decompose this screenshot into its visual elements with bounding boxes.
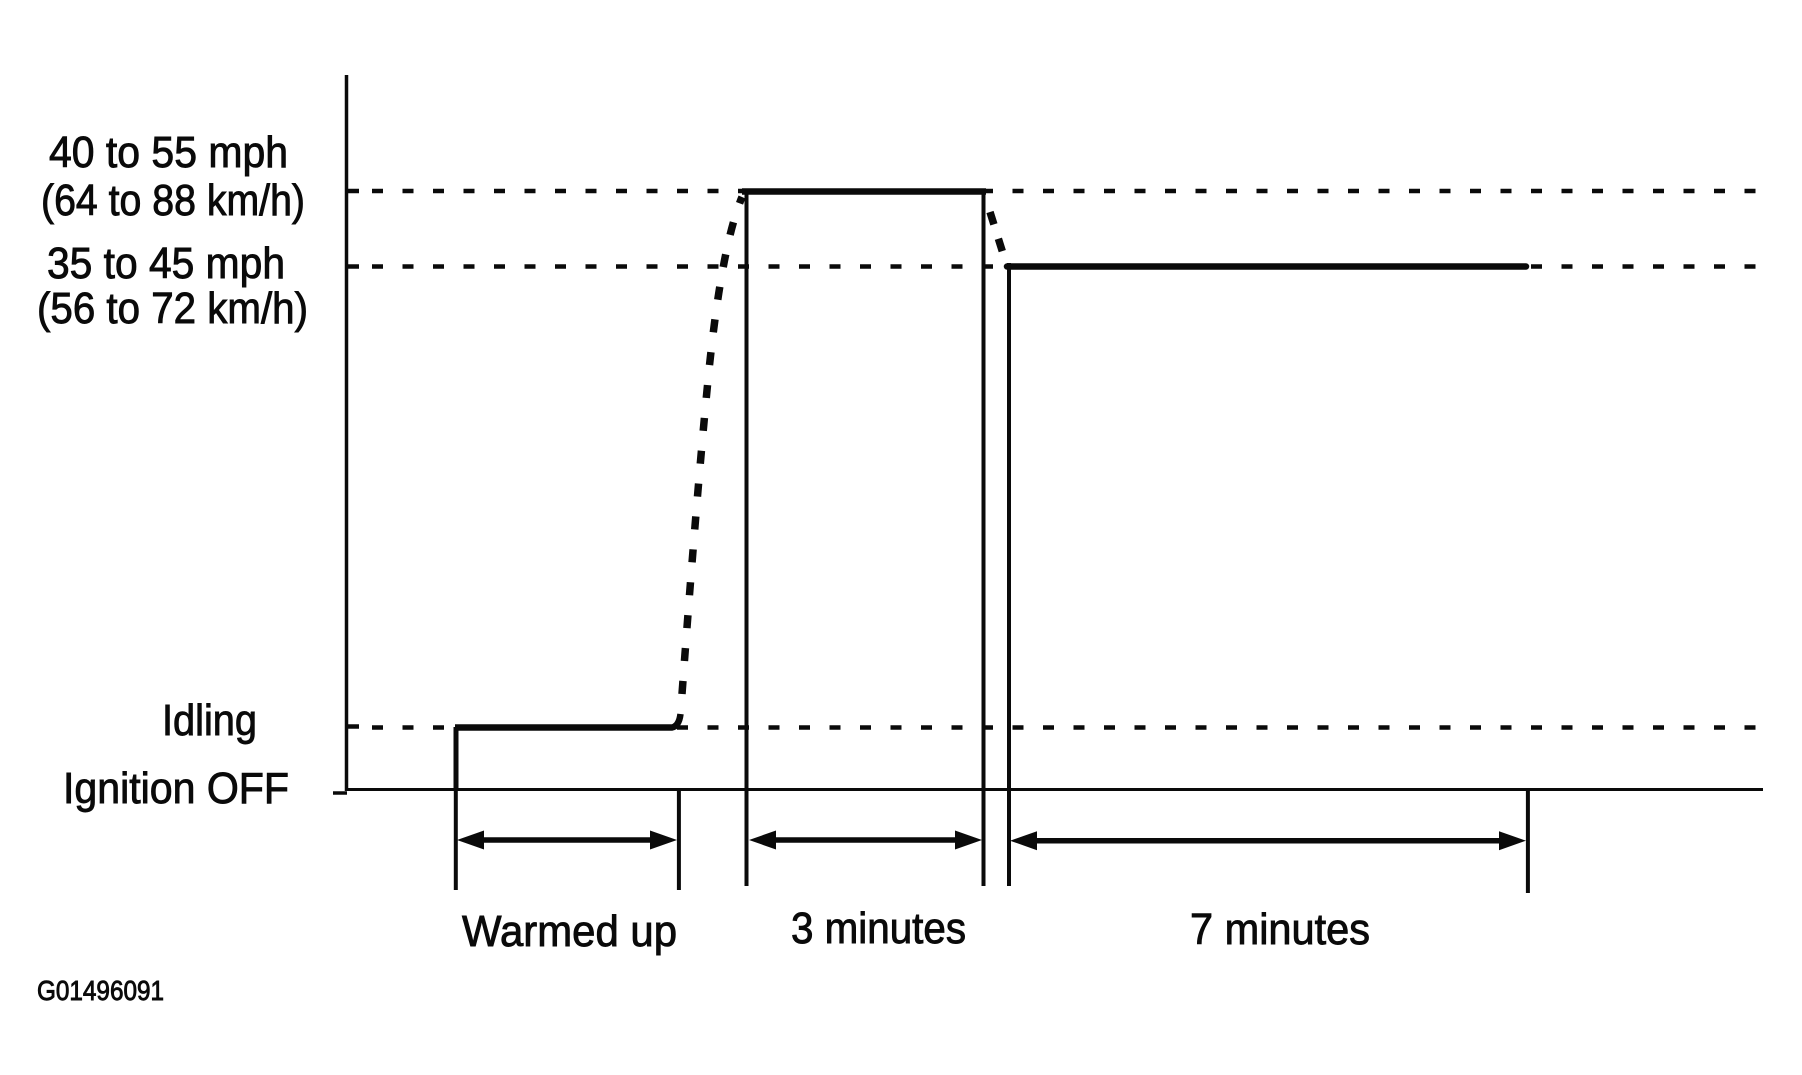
svg-text:Ignition OFF: Ignition OFF <box>63 764 289 813</box>
svg-text:35 to 45 mph: 35 to 45 mph <box>47 239 285 288</box>
svg-text:7 minutes: 7 minutes <box>1190 905 1370 954</box>
svg-text:Idling: Idling <box>162 696 257 745</box>
svg-text:(64 to 88 km/h): (64 to 88 km/h) <box>41 176 305 225</box>
svg-text:G01496091: G01496091 <box>37 975 164 1006</box>
svg-text:Warmed up: Warmed up <box>462 907 677 956</box>
svg-text:40 to 55 mph: 40 to 55 mph <box>49 128 288 177</box>
svg-text:(56 to 72 km/h): (56 to 72 km/h) <box>37 284 308 333</box>
svg-text:3 minutes: 3 minutes <box>791 904 966 953</box>
